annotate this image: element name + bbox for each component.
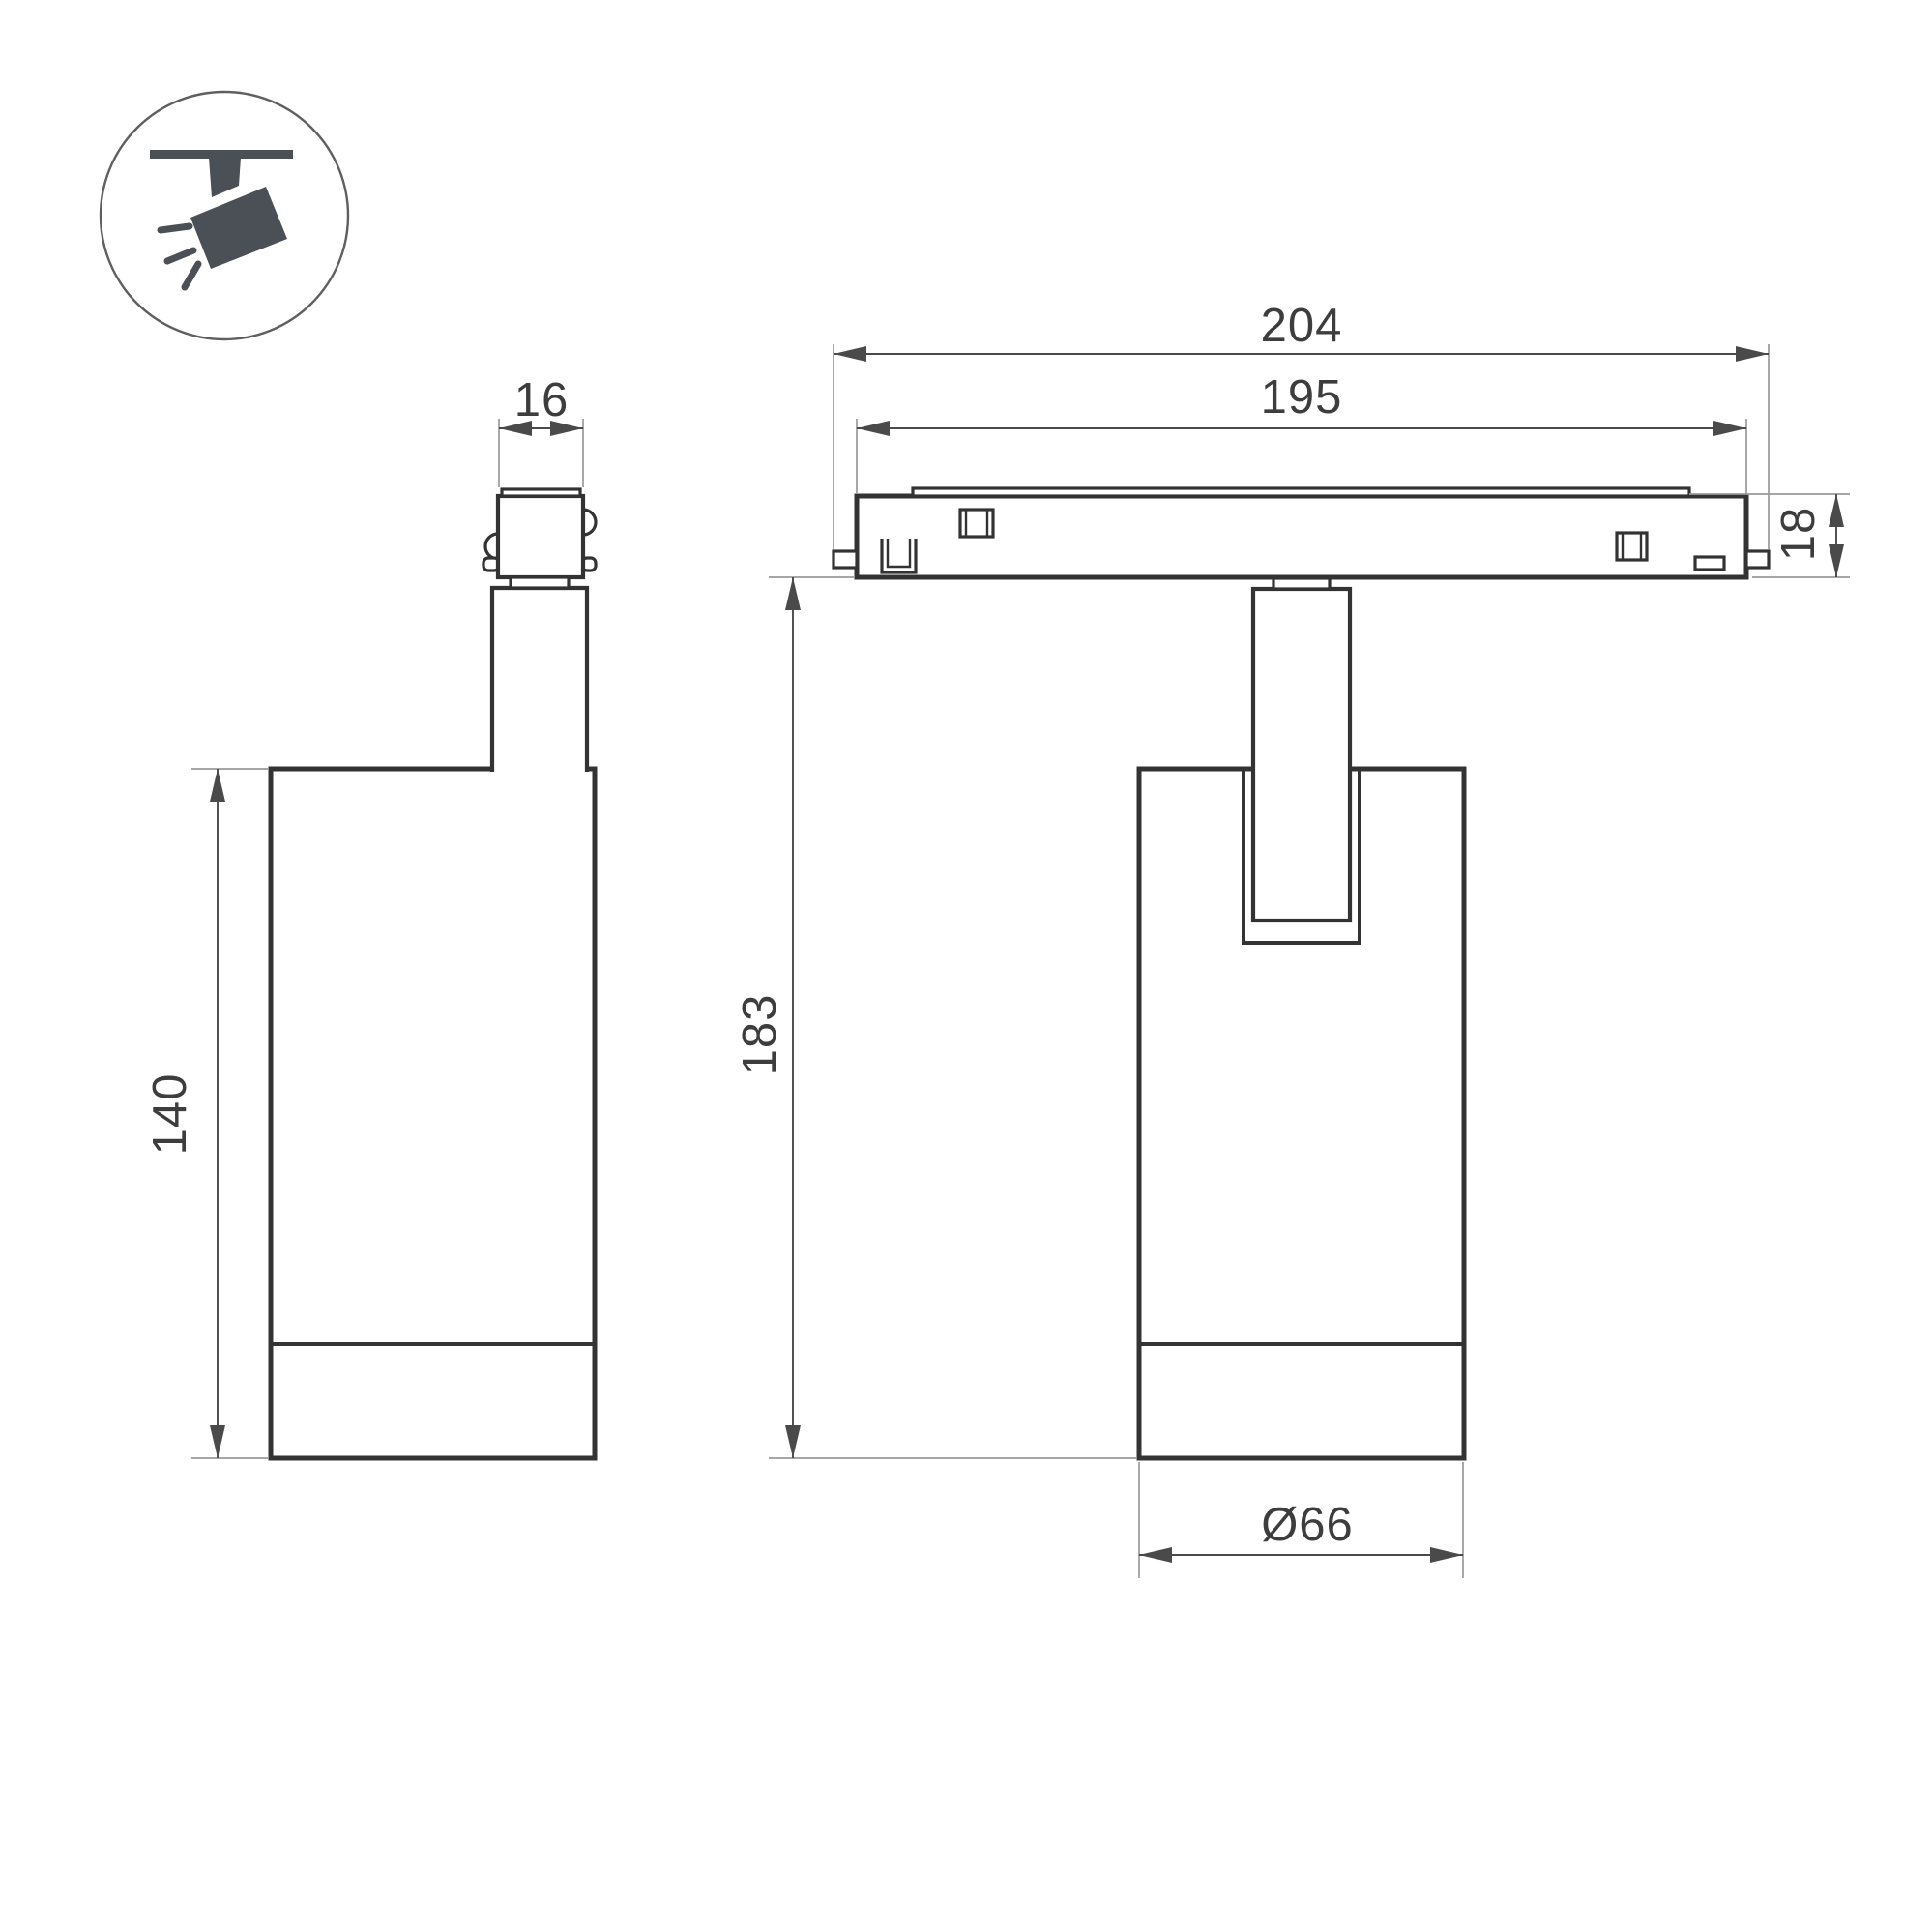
icon-light-ray [161, 226, 190, 230]
arrowhead [1829, 494, 1844, 527]
dim-label-18: 18 [1772, 507, 1825, 562]
dim-track-body-length: 195 [857, 371, 1746, 494]
track-spotlight-icon [101, 92, 348, 339]
dim-label-195: 195 [1261, 371, 1343, 424]
front-stem-collar [1273, 578, 1330, 589]
arrowhead [1736, 346, 1769, 362]
dim-adapter-width: 16 [499, 374, 583, 487]
side-view [271, 489, 596, 1458]
arrowhead [785, 577, 801, 610]
dim-label-183: 183 [734, 994, 786, 1076]
dim-label-140: 140 [144, 1073, 196, 1156]
arrowhead [1829, 544, 1844, 577]
technical-drawing: 16 204 195 18 183 [0, 0, 1932, 1932]
side-adapter-top-plate [502, 489, 580, 496]
dimension-drawing-page: 16 204 195 18 183 [0, 0, 1932, 1932]
front-track-top-plate [913, 488, 1689, 496]
dim-label-16: 16 [514, 374, 570, 426]
dim-label-diameter-66: Ø66 [1261, 1499, 1354, 1551]
arrowhead [210, 1425, 225, 1458]
dim-body-diameter: Ø66 [1139, 1462, 1463, 1578]
front-stem [1253, 589, 1350, 921]
front-track-end-tab-right [1746, 551, 1769, 568]
side-neck [492, 588, 587, 772]
side-adapter-collar [511, 577, 569, 588]
arrowhead [210, 769, 225, 802]
dim-body-height: 140 [144, 769, 268, 1458]
arrowhead [1430, 1547, 1463, 1563]
arrowhead [1139, 1547, 1172, 1563]
arrowhead [834, 346, 866, 362]
front-view [834, 488, 1769, 1458]
arrowhead [1713, 421, 1746, 436]
side-track-adapter [498, 496, 583, 577]
side-body [271, 769, 595, 1458]
dim-label-204: 204 [1261, 300, 1343, 352]
icon-ceiling-line [150, 150, 293, 159]
arrowhead [785, 1425, 801, 1458]
front-track-end-tab-left [834, 551, 857, 568]
dim-total-height: 183 [734, 577, 1137, 1458]
arrowhead [857, 421, 890, 436]
